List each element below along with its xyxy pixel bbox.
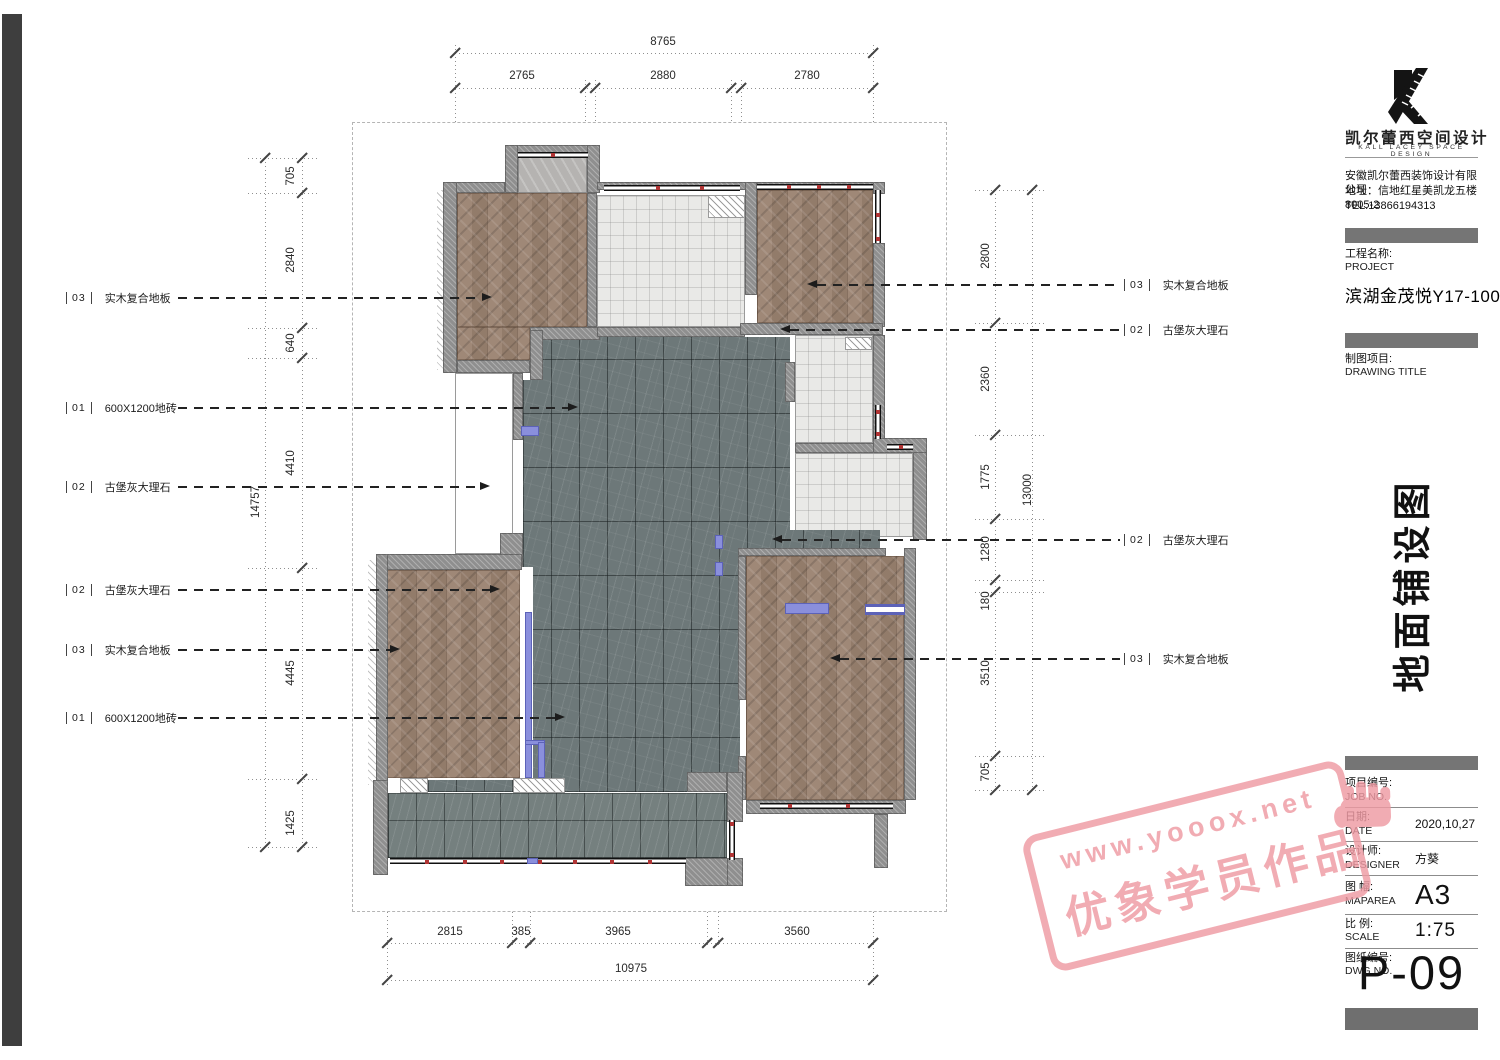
drawing-number: P-09 — [1345, 945, 1478, 1000]
leader-arrow — [772, 535, 782, 543]
wall — [785, 362, 795, 402]
leader-arrow — [480, 482, 490, 490]
dim-label: 705 — [285, 166, 297, 185]
dim-label: 385 — [511, 926, 530, 938]
leader-line — [178, 649, 390, 651]
vent-strip — [785, 603, 829, 614]
material-label: 01 600X1200地砖 — [66, 400, 177, 416]
project-name: 滨湖金茂悦Y17-1003室 — [1345, 282, 1500, 307]
scale-label-en: SCALE — [1345, 931, 1411, 944]
dim-label: 3560 — [784, 926, 810, 938]
wall — [530, 330, 543, 380]
material-code: 02 — [66, 481, 92, 493]
niche — [845, 337, 872, 350]
material-label: 03 实木复合地板 — [1124, 277, 1229, 293]
binding-bar — [2, 14, 22, 1046]
leader-arrow — [807, 280, 817, 288]
bath-right-upper-floor — [795, 335, 873, 443]
dim-label: 4445 — [285, 660, 297, 686]
door-frame — [538, 742, 545, 778]
door-threshold — [527, 858, 538, 864]
dim-guide — [248, 158, 318, 159]
leader-line — [817, 284, 1120, 286]
bedroom-topleft-floor-leg — [457, 327, 530, 360]
material-label: 03 实木复合地板 — [1124, 651, 1229, 667]
bedroom-bottomright-floor — [746, 556, 904, 800]
dim-label: 2360 — [980, 366, 992, 392]
window-dot — [730, 822, 734, 826]
material-code: 03 — [66, 292, 92, 304]
wall — [913, 440, 927, 540]
wall — [373, 780, 388, 875]
material-label: 02 古堡灰大理石 — [1124, 322, 1229, 338]
dim-label: 705 — [980, 762, 992, 781]
niche — [708, 195, 745, 218]
window-dot — [551, 153, 555, 157]
leader-line — [178, 297, 483, 299]
dim-guide — [248, 779, 318, 780]
wall — [874, 814, 888, 868]
leader-line — [178, 717, 555, 719]
threshold-marble-strip — [428, 780, 514, 792]
window-dot — [656, 186, 660, 190]
door-threshold — [715, 535, 723, 549]
dim-label: 13000 — [1022, 474, 1034, 506]
company-tel: TEL:13866194313 — [1345, 200, 1478, 214]
designer-value: 方葵 — [1411, 850, 1478, 867]
material-text: 古堡灰大理石 — [1163, 532, 1229, 548]
window-dot — [700, 186, 704, 190]
section-bar — [1345, 228, 1478, 243]
company-logo — [1377, 66, 1443, 128]
material-label: 01 600X1200地砖 — [66, 710, 177, 726]
bedroom-topleft-floor — [457, 193, 587, 327]
wall — [745, 182, 757, 295]
dim-label: 180 — [980, 591, 992, 610]
dim-guide — [975, 580, 1047, 581]
dim-guide — [248, 193, 318, 194]
dim-label: 2765 — [509, 70, 535, 82]
window-dot — [876, 213, 880, 217]
balcony-floor — [388, 793, 727, 858]
material-text: 600X1200地砖 — [105, 710, 177, 726]
material-label: 02 古堡灰大理石 — [1124, 532, 1229, 548]
watermark-stamp: www.yooox.net 优象学员作品 — [1020, 758, 1374, 974]
window-dot — [500, 860, 504, 864]
scale-label: 比 例: — [1345, 918, 1411, 932]
leader-line — [178, 589, 490, 591]
material-text: 古堡灰大理石 — [105, 479, 171, 495]
leader-arrow — [780, 325, 790, 333]
material-label: 03 实木复合地板 — [66, 290, 171, 306]
window-dot — [876, 432, 880, 436]
dim-guide — [975, 756, 1047, 757]
material-code: 02 — [1124, 324, 1150, 336]
dim-label: 640 — [285, 333, 297, 352]
leader-line — [790, 329, 1120, 331]
dim-label: 2815 — [437, 926, 463, 938]
door-threshold — [521, 426, 539, 436]
window-dot — [847, 185, 851, 189]
material-code: 03 — [1124, 279, 1150, 291]
window-dot — [788, 804, 792, 808]
window-dot — [876, 410, 880, 414]
dim-label: 2780 — [794, 70, 820, 82]
dim-label: 1775 — [980, 464, 992, 490]
dim-label: 10975 — [615, 963, 647, 975]
door-frame — [525, 612, 532, 778]
material-code: 03 — [1124, 653, 1150, 665]
material-code: 01 — [66, 712, 92, 724]
wall — [457, 360, 530, 373]
wall-hatch — [437, 190, 443, 370]
stamp-border: www.yooox.net 优象学员作品 — [1020, 758, 1374, 974]
dim-guide — [975, 190, 1047, 191]
dim-guide — [248, 358, 318, 359]
bath-right-lower-floor — [795, 453, 913, 537]
logo-subtitle: KALL LACEY SPACE DESIGN — [1345, 144, 1478, 158]
dim-label: 2840 — [285, 247, 297, 273]
dim-line — [302, 158, 303, 847]
window — [757, 184, 873, 190]
wall — [687, 772, 727, 792]
material-label: 02 古堡灰大理石 — [66, 479, 171, 495]
floor-plan — [352, 122, 945, 910]
window — [760, 803, 893, 809]
dim-guide — [873, 912, 874, 985]
dim-line — [265, 158, 266, 847]
leader-arrow — [830, 654, 840, 662]
threshold — [513, 778, 565, 793]
dim-guide — [387, 912, 388, 985]
dim-line — [995, 190, 996, 790]
wall — [904, 548, 916, 800]
dim-guide — [248, 847, 318, 848]
material-text: 实木复合地板 — [105, 290, 171, 306]
material-code: 02 — [1124, 534, 1150, 546]
dim-label: 3510 — [980, 660, 992, 686]
row-scale: 比 例: SCALE 1:75 — [1345, 915, 1478, 949]
leader-line — [178, 407, 568, 409]
wall — [738, 548, 886, 556]
project-label: 工程名称: — [1345, 248, 1478, 262]
dim-label: 1425 — [285, 810, 297, 836]
shaft-void — [455, 373, 513, 554]
scale-value: 1:75 — [1411, 920, 1478, 942]
material-text: 古堡灰大理石 — [105, 582, 171, 598]
dim-line — [455, 53, 873, 54]
leader-arrow — [390, 645, 400, 653]
dim-line — [387, 943, 873, 944]
window-dot — [876, 237, 880, 241]
door-threshold — [715, 562, 723, 576]
window-dot — [463, 860, 467, 864]
dim-label: 2880 — [650, 70, 676, 82]
leader-line — [782, 539, 1120, 541]
leader-arrow — [568, 403, 578, 411]
material-label: 03 实木复合地板 — [66, 642, 171, 658]
dim-guide — [248, 568, 318, 569]
material-code: 02 — [66, 584, 92, 596]
leader-arrow — [555, 713, 565, 721]
dim-guide — [975, 519, 1047, 520]
window-dot — [573, 860, 577, 864]
material-text: 实木复合地板 — [1163, 277, 1229, 293]
wall — [505, 145, 518, 193]
material-code: 03 — [66, 644, 92, 656]
window-dot — [817, 185, 821, 189]
dim-guide — [975, 323, 1047, 324]
window-dot — [899, 445, 903, 449]
maparea-value: A3 — [1411, 879, 1478, 911]
wall — [727, 772, 743, 822]
material-text: 实木复合地板 — [105, 642, 171, 658]
window-dot — [787, 185, 791, 189]
dim-line — [455, 88, 873, 89]
drawing-title: 地面铺设图 — [1382, 477, 1437, 692]
wall — [443, 182, 457, 373]
wall-hatch — [368, 560, 376, 785]
dim-guide — [975, 790, 1047, 791]
window — [604, 185, 740, 191]
drawing-title-label: 制图项目: — [1345, 353, 1478, 367]
dim-label: 8765 — [650, 36, 676, 48]
window-dot — [538, 860, 542, 864]
leader-line — [840, 658, 1120, 660]
wall — [597, 327, 745, 337]
dim-label: 4410 — [285, 450, 297, 476]
material-text: 600X1200地砖 — [105, 400, 177, 416]
dim-label: 3965 — [605, 926, 631, 938]
window-dot — [648, 860, 652, 864]
section-bar — [1345, 333, 1478, 348]
dim-guide — [455, 45, 456, 122]
wall — [738, 556, 746, 700]
wall — [727, 858, 743, 886]
vent-strip — [865, 604, 905, 615]
drawing-title-label-en: DRAWING TITLE — [1345, 366, 1478, 379]
logo-k-icon — [1377, 66, 1443, 128]
dim-label: 14757 — [250, 486, 262, 518]
window-dot — [730, 853, 734, 857]
threshold — [400, 778, 428, 793]
dim-guide — [248, 328, 318, 329]
leader-arrow — [490, 585, 500, 593]
bedroom-bottomleft-floor — [386, 570, 520, 778]
window-dot — [425, 860, 429, 864]
window-dot — [846, 804, 850, 808]
date-value: 2020,10,27 — [1411, 817, 1478, 831]
window-dot — [610, 860, 614, 864]
dim-label: 2800 — [980, 243, 992, 269]
wall — [376, 554, 522, 570]
dim-guide — [975, 435, 1047, 436]
material-text: 古堡灰大理石 — [1163, 322, 1229, 338]
leader-arrow — [482, 293, 492, 301]
entry-floor — [518, 156, 587, 193]
material-text: 实木复合地板 — [1163, 651, 1229, 667]
material-label: 02 古堡灰大理石 — [66, 582, 171, 598]
wall — [685, 858, 730, 886]
section-bar — [1345, 1008, 1478, 1030]
wall — [795, 443, 885, 453]
project-label-en: PROJECT — [1345, 261, 1478, 274]
bedroom-topright-floor — [757, 190, 873, 323]
dim-guide — [873, 45, 874, 122]
material-code: 01 — [66, 402, 92, 414]
leader-line — [178, 486, 480, 488]
divider — [1345, 157, 1478, 158]
dim-line — [387, 980, 873, 981]
wall — [587, 193, 597, 327]
section-bar — [1345, 756, 1478, 770]
